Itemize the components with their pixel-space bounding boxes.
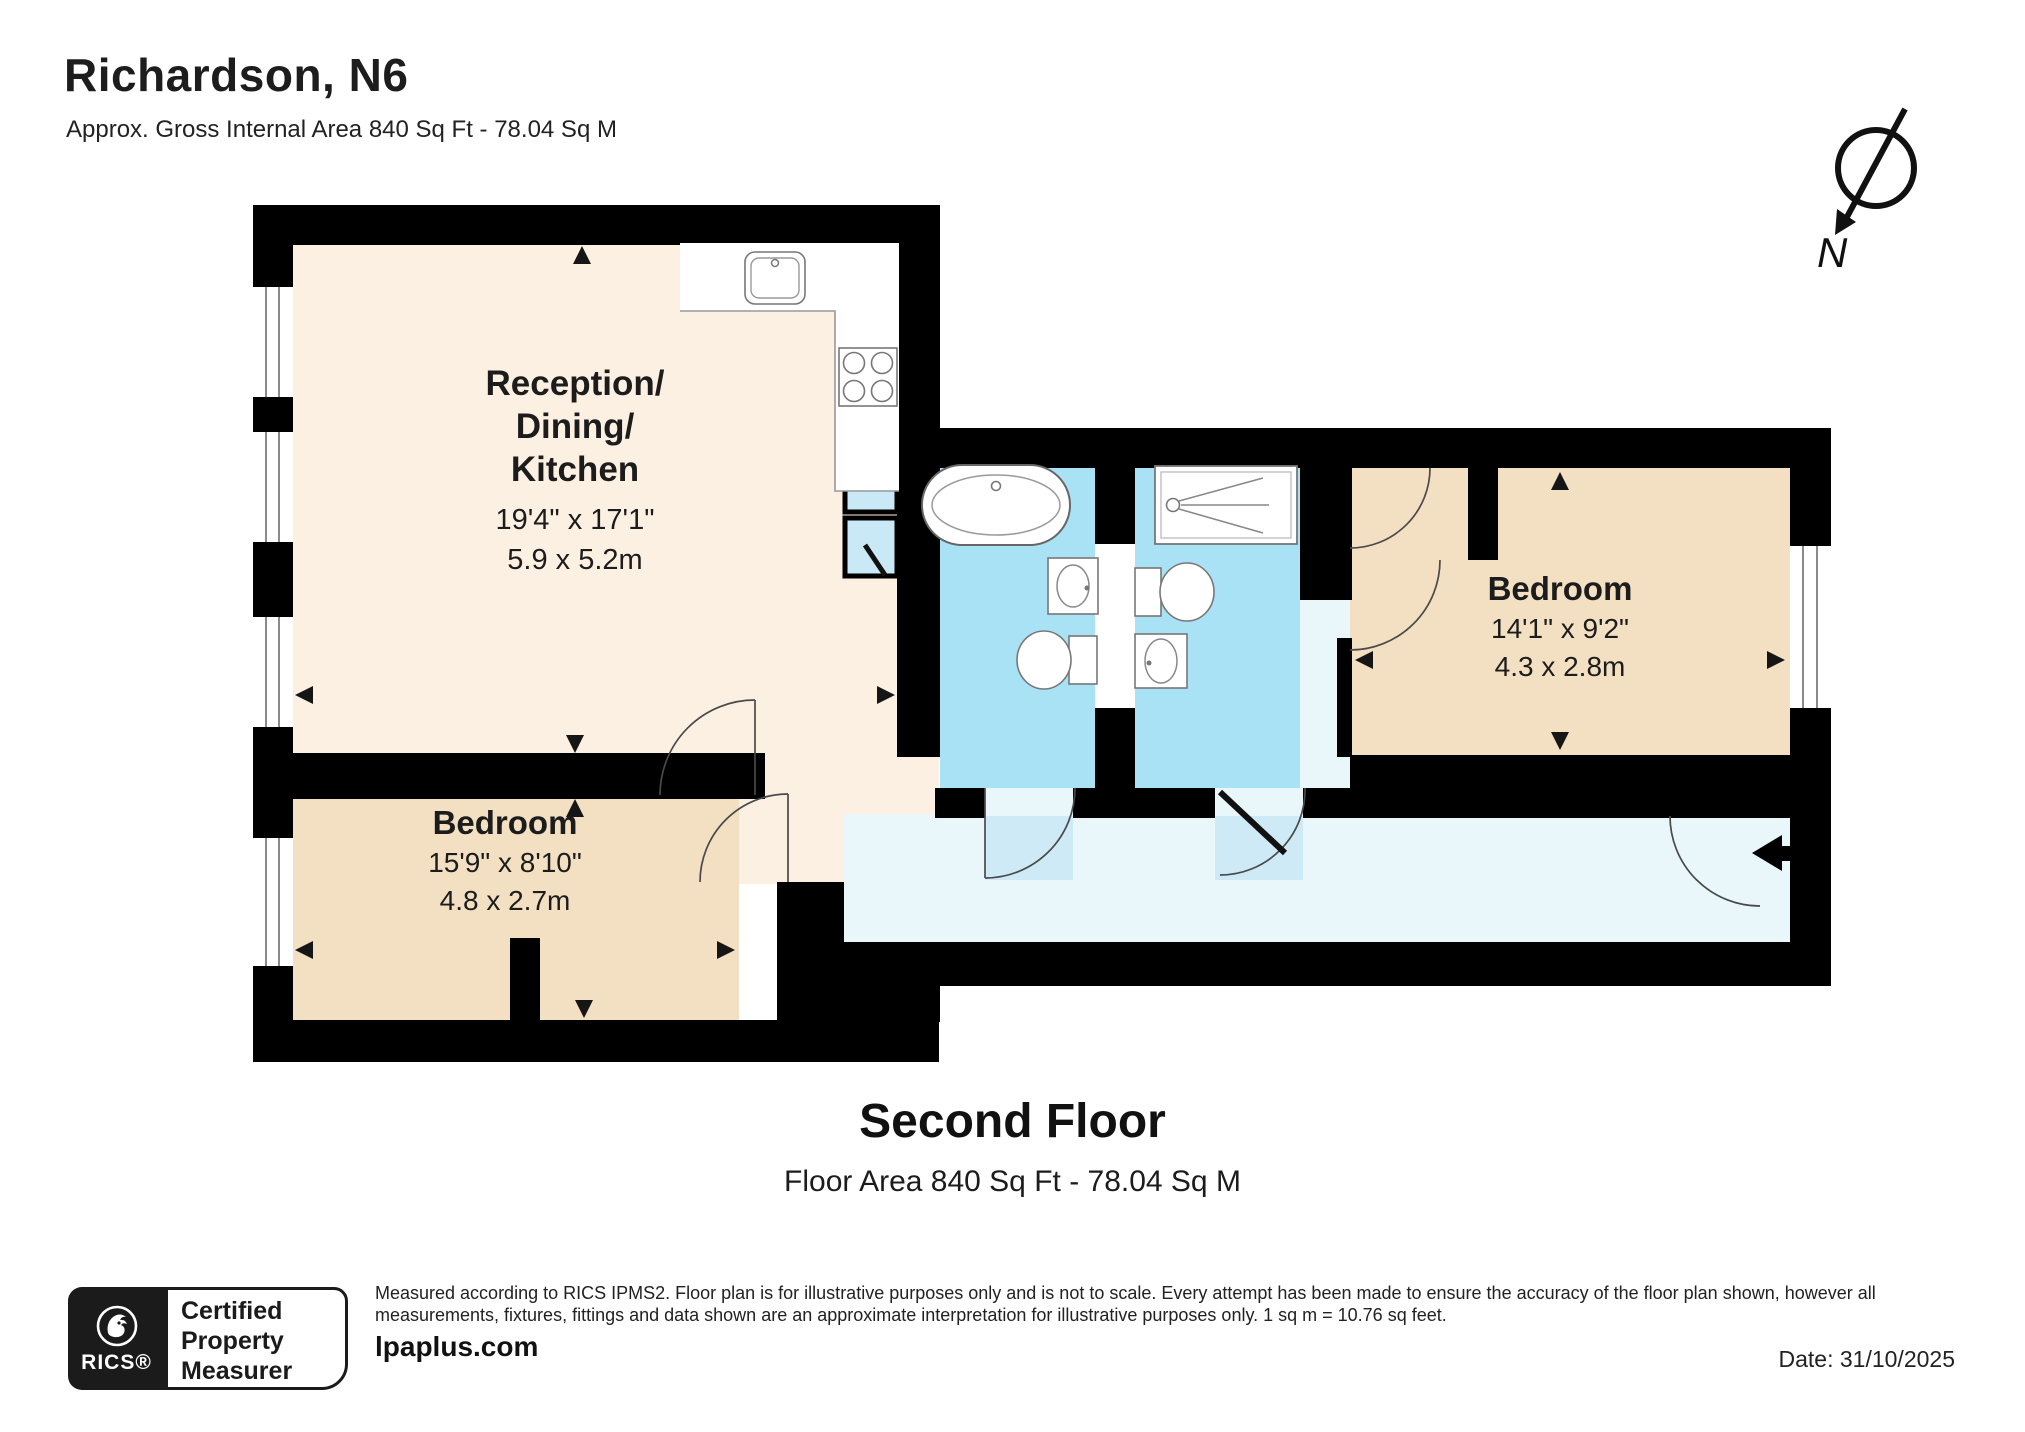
room-dims-metric: 4.3 x 2.8m <box>1405 648 1715 686</box>
room-label-bedroom-1: Bedroom 15'9" x 8'10" 4.8 x 2.7m <box>355 802 655 920</box>
basin-icon <box>1048 558 1098 614</box>
website-text: lpaplus.com <box>375 1331 538 1363</box>
date-text: Date: 31/10/2025 <box>1779 1346 1955 1373</box>
page-subtitle: Approx. Gross Internal Area 840 Sq Ft - … <box>66 116 617 144</box>
basin-icon <box>1135 634 1187 688</box>
room-dims-imperial: 15'9" x 8'10" <box>355 844 655 882</box>
floor-area: Floor Area 840 Sq Ft - 78.04 Sq M <box>0 1165 2025 1199</box>
bathtub-icon <box>922 465 1070 545</box>
disclaimer-text: Measured according to RICS IPMS2. Floor … <box>375 1283 1957 1326</box>
rics-logo: RICS® <box>68 1287 165 1390</box>
page-title: Richardson, N6 <box>64 48 408 102</box>
floor-caption: Second Floor Floor Area 840 Sq Ft - 78.0… <box>0 1094 2025 1199</box>
certified-property-measurer-badge: Certified Property Measurer <box>165 1287 348 1390</box>
rics-brand-text: RICS® <box>81 1351 152 1375</box>
room-label-bedroom-2: Bedroom 14'1" x 9'2" 4.3 x 2.8m <box>1405 568 1715 686</box>
room-dims-metric: 5.9 x 5.2m <box>415 540 735 580</box>
floor-name: Second Floor <box>0 1094 2025 1149</box>
room-dims-imperial: 19'4" x 17'1" <box>415 500 735 540</box>
north-compass-icon: N <box>1815 95 1945 280</box>
room-dims-metric: 4.8 x 2.7m <box>355 882 655 920</box>
toilet-icon <box>1135 563 1214 621</box>
hob-icon <box>839 348 897 406</box>
shower-icon <box>1155 466 1297 544</box>
room-label-reception: Reception/ Dining/ Kitchen 19'4" x 17'1"… <box>415 362 735 580</box>
toilet-icon <box>1017 631 1097 689</box>
room-dims-imperial: 14'1" x 9'2" <box>1405 610 1715 648</box>
rics-lion-icon <box>94 1303 140 1349</box>
floorplan-page: { "header": { "title": "Richardson, N6",… <box>0 0 2025 1432</box>
